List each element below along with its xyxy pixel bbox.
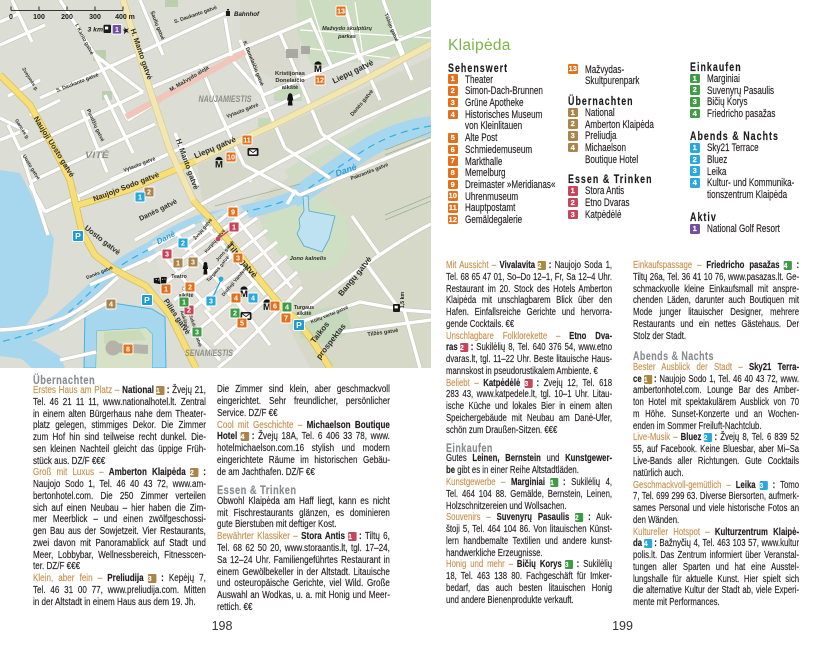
svg-text:P: P [296,320,302,330]
svg-text:3 km: 3 km [88,27,104,34]
svg-text:13: 13 [337,7,345,16]
svg-text:1: 1 [138,193,142,202]
svg-text:12: 12 [316,76,324,85]
svg-text:5: 5 [240,319,244,328]
svg-text:aikštė: aikštė [282,85,299,91]
svg-text:NAUJAMIESTIS: NAUJAMIESTIS [199,94,252,104]
svg-text:2: 2 [188,283,192,292]
svg-text:10: 10 [227,153,235,162]
svg-text:Jono kalnelis: Jono kalnelis [290,256,328,262]
svg-text:4: 4 [251,294,255,303]
svg-text:400 m: 400 m [115,14,135,21]
svg-text:4: 4 [109,300,113,309]
svg-text:Bahnhof: Bahnhof [234,11,260,18]
svg-text:300: 300 [89,14,101,21]
svg-text:9: 9 [231,208,235,217]
svg-text:M: M [314,64,322,75]
svg-text:4: 4 [234,294,238,303]
svg-text:Mažvydo skulptūrų: Mažvydo skulptūrų [322,26,372,32]
svg-text:1: 1 [232,223,236,232]
svg-text:Donelaičio: Donelaičio [275,78,305,84]
svg-text:Kristijonas: Kristijonas [275,71,305,77]
svg-text:0: 0 [9,14,13,21]
svg-text:2: 2 [233,309,237,318]
svg-text:3: 3 [209,297,213,306]
svg-text:7: 7 [284,314,288,323]
svg-text:P: P [75,231,81,241]
svg-text:3: 3 [236,254,240,263]
svg-text:4: 4 [285,303,289,312]
svg-text:3: 3 [165,250,169,259]
svg-text:aikštė: aikštė [297,311,312,317]
svg-text:Teatro: Teatro [171,274,186,280]
svg-text:3: 3 [191,258,195,267]
svg-text:1: 1 [182,298,186,307]
svg-text:1,5 km: 1,5 km [400,292,406,309]
svg-text:3: 3 [195,328,199,337]
svg-text:1: 1 [164,285,168,294]
svg-text:VITĖ: VITĖ [85,150,110,160]
svg-text:11: 11 [243,136,251,145]
svg-text:parkas: parkas [337,34,356,40]
svg-text:M: M [215,160,223,171]
svg-text:1: 1 [115,27,119,34]
svg-text:100: 100 [33,14,45,21]
svg-text:2: 2 [147,188,151,197]
svg-text:200: 200 [61,14,73,21]
svg-text:6: 6 [273,302,277,311]
svg-text:8: 8 [126,345,130,354]
svg-text:1: 1 [176,259,180,268]
svg-text:2: 2 [181,239,185,248]
svg-text:SENAMIESTIS: SENAMIESTIS [185,348,233,358]
svg-text:P: P [144,295,150,305]
